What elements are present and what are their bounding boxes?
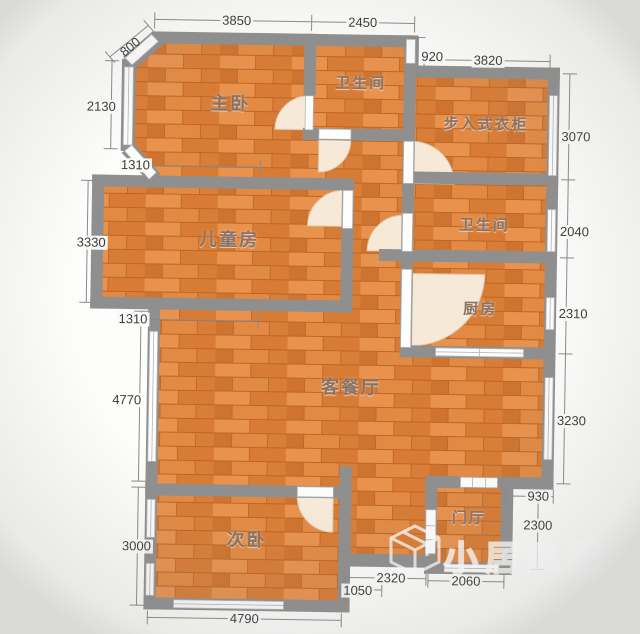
- door-opening-kitchen: [401, 269, 412, 347]
- room-label-living-dining: 客餐厅: [321, 373, 381, 400]
- room-label-second-bedroom: 次卧: [226, 526, 266, 553]
- door-leaf-master: [305, 96, 314, 130]
- dim-2310: 2310: [557, 307, 590, 321]
- dim-2450: 2450: [346, 16, 379, 30]
- door-opening-closet: [403, 141, 414, 183]
- dim-3850: 3850: [220, 14, 253, 28]
- dim-3330: 3330: [75, 235, 108, 249]
- dim-920: 920: [419, 50, 445, 64]
- watermark-text: 小居建配: [444, 531, 608, 580]
- dim-3000: 3000: [120, 539, 153, 553]
- room-label-bathroom-mid: 卫生间: [459, 214, 510, 236]
- dim-3820: 3820: [472, 54, 505, 68]
- dim-3070: 3070: [559, 130, 592, 144]
- room-label-foyer: 门厅: [452, 507, 486, 529]
- door-opening-kids: [342, 190, 353, 228]
- door-opening-bath-top: [319, 129, 351, 140]
- dim-1050: 1050: [341, 584, 374, 598]
- floor-plan: 主卧 卫生间 步入式衣柜 儿童房 卫生间 厨房 客餐厅 次卧 门厅 3850 2…: [0, 0, 640, 634]
- dim-3230: 3230: [555, 414, 588, 428]
- dim-1310-b: 1310: [116, 312, 149, 326]
- room-label-bathroom-top: 卫生间: [335, 72, 386, 94]
- foyer-top-opening: [460, 477, 497, 488]
- room-label-master-bedroom: 主卧: [210, 89, 250, 116]
- dim-2040: 2040: [558, 225, 591, 239]
- room-label-kids-room: 儿童房: [199, 225, 259, 252]
- window-jog: [406, 39, 415, 63]
- dim-1310-a: 1310: [119, 158, 152, 172]
- dim-4790: 4790: [228, 612, 261, 626]
- dim-2130: 2130: [85, 99, 118, 113]
- room-label-kitchen: 厨房: [463, 298, 497, 320]
- door-opening-second-bedroom: [297, 487, 333, 498]
- watermark-cube-icon: [386, 522, 444, 578]
- dim-930: 930: [525, 489, 551, 503]
- room-label-walk-in-closet: 步入式衣柜: [443, 112, 528, 134]
- door-opening-bath-mid: [402, 213, 413, 251]
- dim-4770: 4770: [110, 393, 143, 407]
